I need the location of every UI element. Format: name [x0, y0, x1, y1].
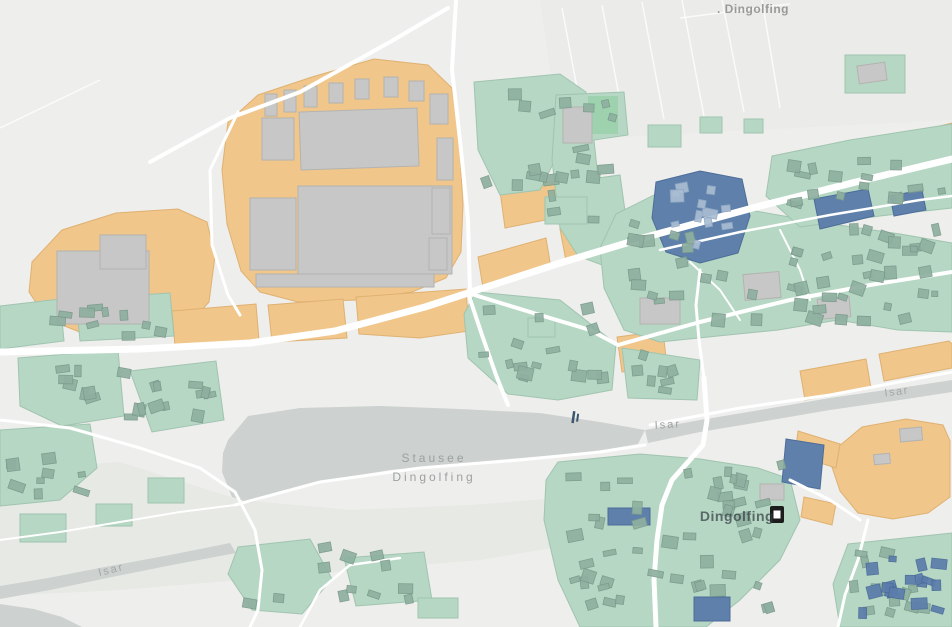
map-label-place-town: Dingolfing — [700, 508, 774, 524]
map-svg: . DingolfingStauseeDingolfingIsarIsarIsa… — [0, 0, 952, 627]
map-label-isar-mid: Isar — [654, 418, 681, 431]
map-label-stausee-line2: Dingolfing — [392, 470, 475, 484]
map-label-place-top: . Dingolfing — [717, 2, 789, 16]
map-label-stausee-line1: Stausee — [401, 451, 466, 465]
map-canvas[interactable]: . DingolfingStauseeDingolfingIsarIsarIsa… — [0, 0, 952, 627]
